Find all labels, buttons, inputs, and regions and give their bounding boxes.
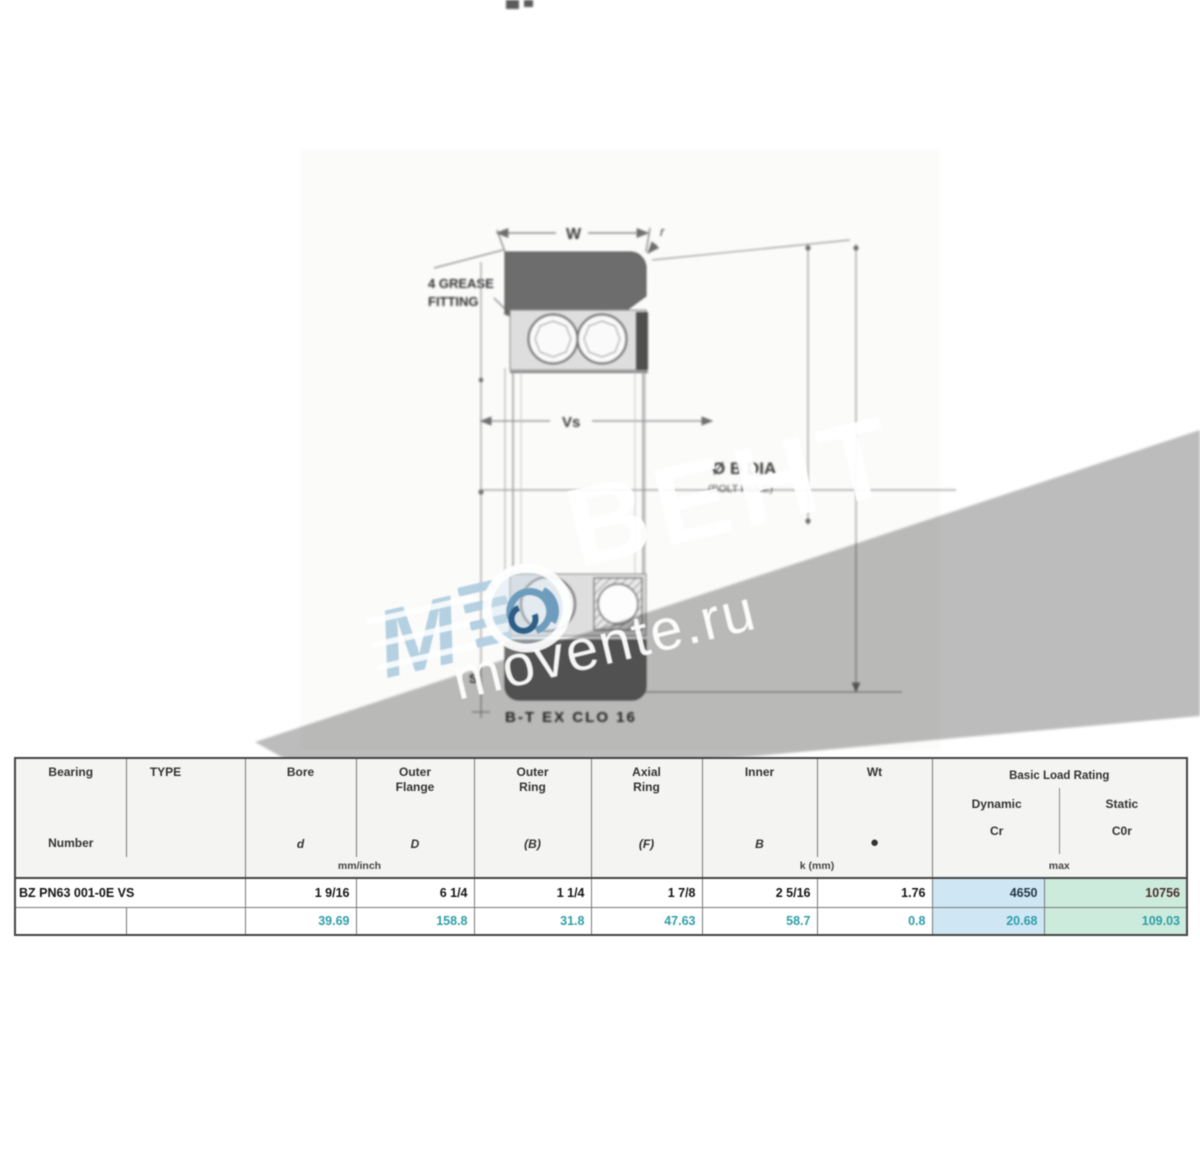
header-bore-sym: d bbox=[248, 837, 354, 851]
cell-dynamic-inch: 4650 bbox=[932, 878, 1044, 908]
col-header-weight: Wt ● bbox=[817, 758, 932, 857]
col-header-bore: Bore d bbox=[245, 758, 356, 857]
data-row-inch: BZ PN63 001-0E VS 1 9/16 6 1/4 1 1/4 1 7… bbox=[15, 878, 1187, 908]
units-row: mm/inch k (mm) max bbox=[15, 857, 1187, 878]
data-row-mm: 39.69 158.8 31.8 47.63 58.7 0.8 20.68 10… bbox=[15, 908, 1187, 936]
cell-ring-mm: 31.8 bbox=[474, 908, 591, 936]
cell-flange-mm: 158.8 bbox=[356, 908, 474, 936]
cell-ring-inch: 1 1/4 bbox=[474, 878, 591, 908]
cell-static-mm: 109.03 bbox=[1044, 908, 1187, 936]
header-ring-name2: Ring bbox=[519, 780, 546, 794]
top-smudge bbox=[506, 0, 533, 9]
cell-flange-inch: 6 1/4 bbox=[356, 878, 474, 908]
header-load-dyn-sym: Cr bbox=[935, 824, 1059, 838]
header-load-stat-name: Static bbox=[1060, 797, 1184, 811]
cell-inner-mm: 58.7 bbox=[702, 908, 817, 936]
cell-bore-inch: 1 9/16 bbox=[245, 878, 356, 908]
cell-weight-mm: 0.8 bbox=[817, 908, 932, 936]
header-load-stat-sym: C0r bbox=[1060, 824, 1184, 838]
cell-number-mm-empty bbox=[15, 908, 126, 936]
outer-ring-top bbox=[505, 252, 646, 312]
dia-label: Ø B DIA bbox=[712, 459, 776, 478]
dim-mid-label: Vs bbox=[562, 414, 580, 431]
header-load-dyn-name: Dynamic bbox=[935, 797, 1059, 811]
units-empty-1 bbox=[15, 857, 245, 878]
header-weight-name: Wt bbox=[820, 765, 930, 780]
col-header-bearing: Bearing Number bbox=[15, 758, 126, 857]
header-row: Bearing Number TYPE Bore d bbox=[15, 758, 1187, 857]
header-axial-sym: (F) bbox=[594, 837, 700, 851]
header-flange-name2: Flange bbox=[396, 780, 435, 794]
header-flange-name1: Outer bbox=[399, 765, 431, 779]
cell-static-inch: 10756 bbox=[1044, 878, 1187, 908]
header-weight-sym: ● bbox=[820, 834, 930, 851]
cell-number: BZ PN63 001-0E VS bbox=[15, 878, 245, 908]
units-k-mm: k (mm) bbox=[702, 857, 932, 878]
cell-dynamic-mm: 20.68 bbox=[932, 908, 1044, 936]
cell-axial-inch: 1 7/8 bbox=[591, 878, 702, 908]
units-empty-3 bbox=[591, 857, 702, 878]
header-inner-name: Inner bbox=[705, 765, 815, 780]
header-axial-name1: Axial bbox=[632, 765, 661, 779]
cell-axial-mm: 47.63 bbox=[591, 908, 702, 936]
header-bearing-line2: Number bbox=[18, 836, 124, 851]
cell-inner-inch: 2 5/16 bbox=[702, 878, 817, 908]
header-flange-sym: D bbox=[359, 837, 472, 851]
bearing-drawing: W r 4 GREASE FITTING bbox=[0, 0, 1200, 760]
header-bore-name: Bore bbox=[248, 765, 354, 780]
header-ring-sym: (B) bbox=[477, 837, 589, 851]
dim-s-label: S bbox=[469, 671, 478, 686]
header-axial-name2: Ring bbox=[633, 780, 660, 794]
spec-table-wrap: Bearing Number TYPE Bore d bbox=[14, 757, 1186, 936]
header-load-static: Static C0r bbox=[1059, 788, 1184, 854]
col-header-flange: Outer Flange D bbox=[356, 758, 474, 857]
dia-sub-label: (BOLT HOLE) bbox=[708, 483, 773, 495]
note-line1: 4 GREASE bbox=[428, 276, 494, 291]
bottom-note: B-T EX CLO 16 bbox=[505, 709, 637, 726]
col-header-type: TYPE bbox=[126, 758, 245, 857]
header-load-dynamic: Dynamic Cr bbox=[935, 788, 1059, 854]
ball-bottom-2 bbox=[598, 584, 638, 624]
col-header-inner: Inner B bbox=[702, 758, 817, 857]
outer-ring-bottom bbox=[505, 640, 646, 700]
header-ring-name1: Outer bbox=[516, 765, 548, 779]
dim-top-label: W bbox=[566, 226, 582, 243]
product-sheet: W r 4 GREASE FITTING bbox=[0, 0, 1200, 1165]
spec-table: Bearing Number TYPE Bore d bbox=[14, 757, 1188, 936]
cell-weight-inch: 1.76 bbox=[817, 878, 932, 908]
note-line2: FITTING bbox=[428, 294, 479, 309]
header-type: TYPE bbox=[126, 765, 243, 780]
ball-bottom bbox=[521, 577, 575, 631]
col-header-ring: Outer Ring (B) bbox=[474, 758, 591, 857]
units-mm-inch: mm/inch bbox=[245, 857, 474, 878]
header-inner-sym: B bbox=[705, 837, 815, 851]
seal-strip bbox=[636, 312, 648, 370]
units-empty-2 bbox=[474, 857, 591, 878]
dim-corner-label: r bbox=[660, 224, 665, 239]
units-max: max bbox=[932, 857, 1187, 878]
cell-type-mm-empty bbox=[126, 908, 245, 936]
header-bearing-line1: Bearing bbox=[18, 765, 124, 780]
col-header-load: Basic Load Rating Dynamic Cr Static C0r bbox=[932, 758, 1187, 857]
cell-bore-mm: 39.69 bbox=[245, 908, 356, 936]
header-load-title: Basic Load Rating bbox=[935, 762, 1185, 782]
col-header-axial: Axial Ring (F) bbox=[591, 758, 702, 857]
